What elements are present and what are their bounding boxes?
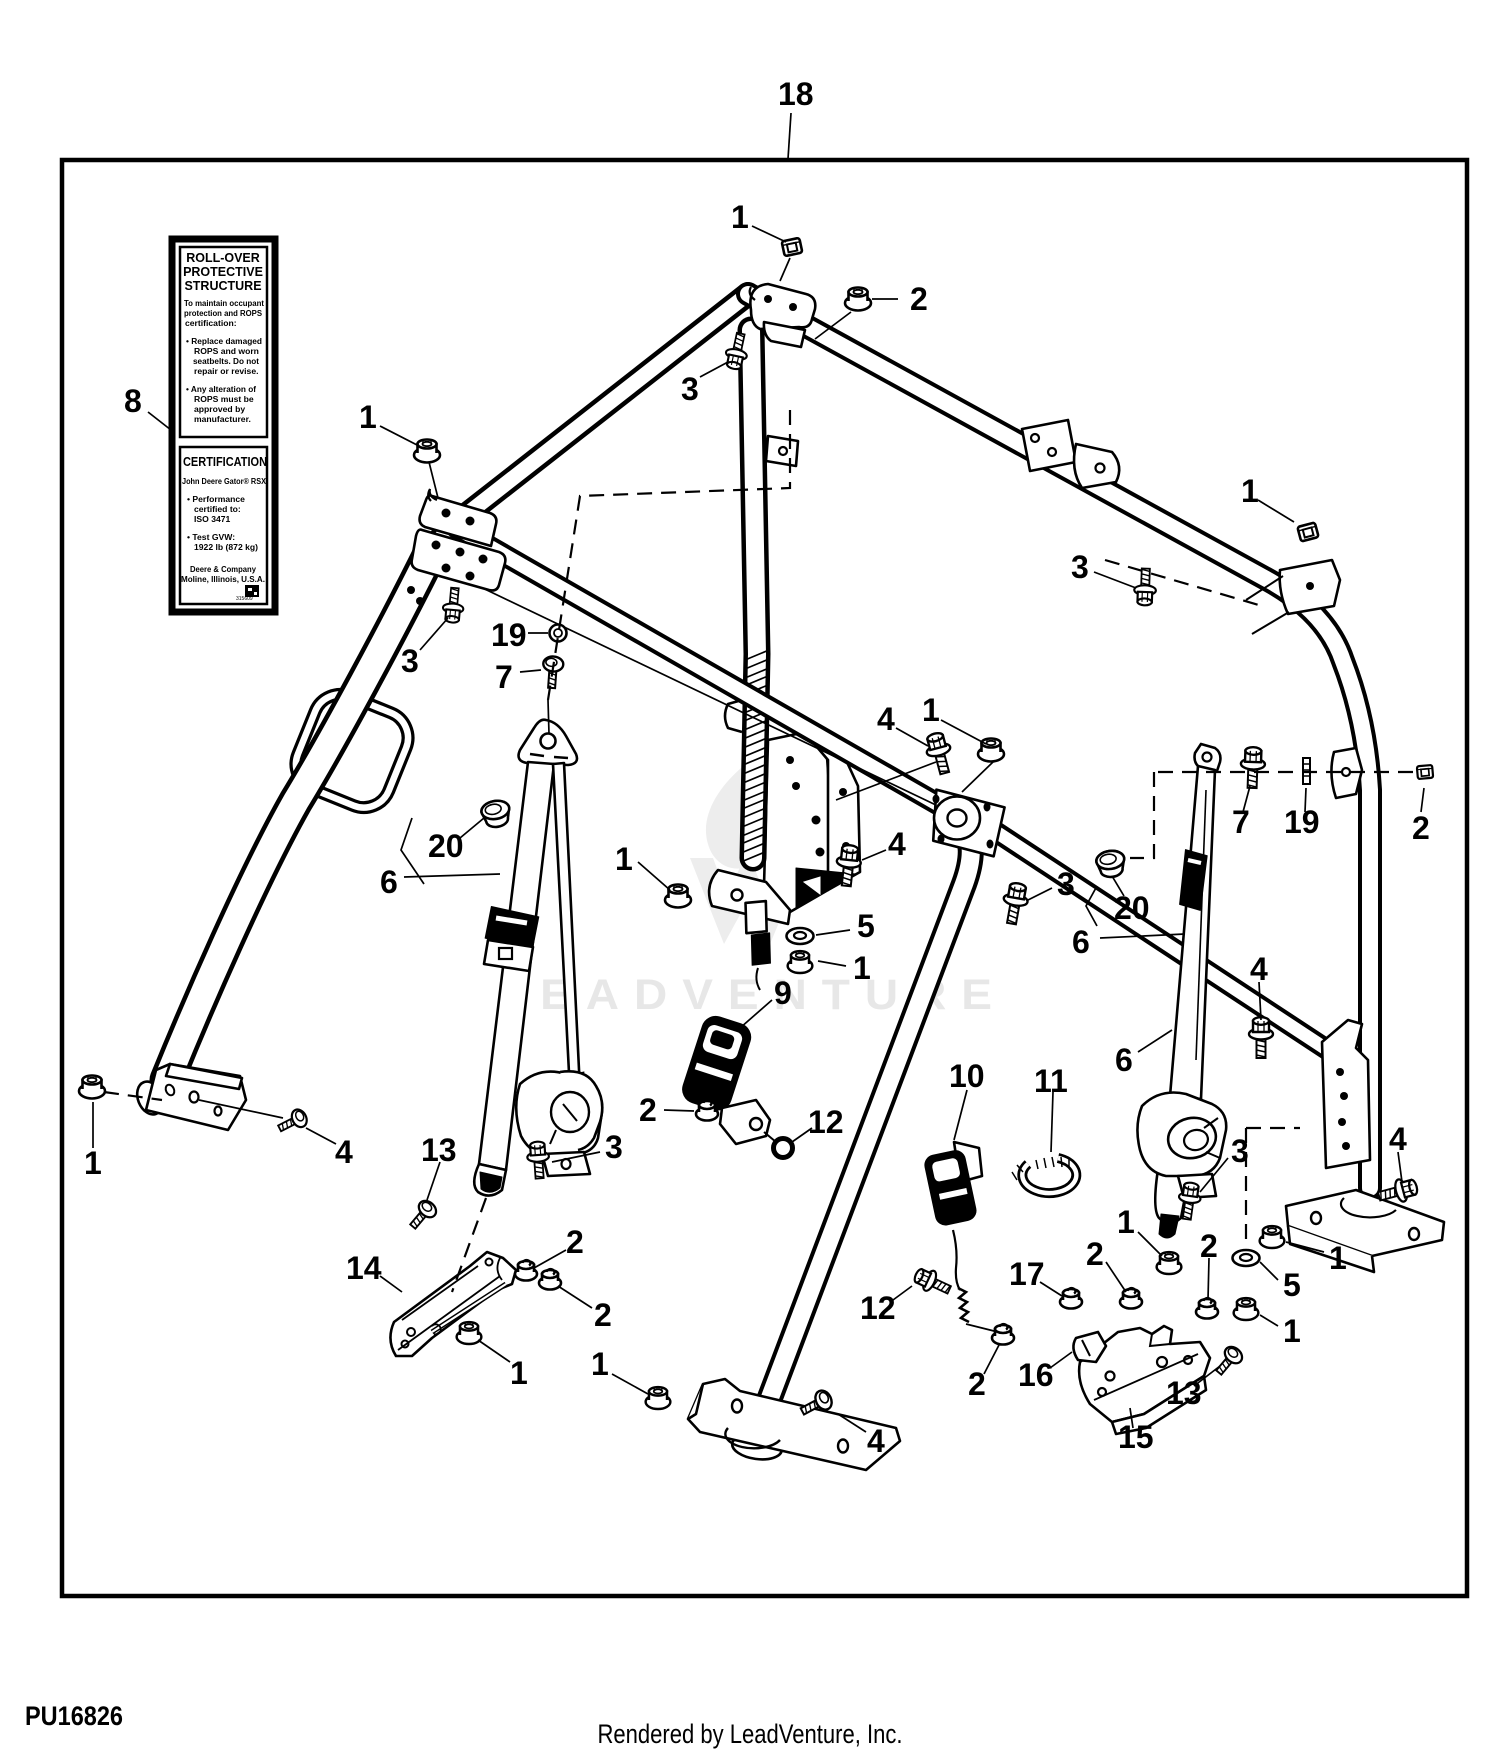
svg-text:5: 5 <box>857 908 875 944</box>
svg-text:4: 4 <box>888 826 906 862</box>
svg-text:To maintain occupant: To maintain occupant <box>184 298 264 308</box>
svg-text:9: 9 <box>774 975 792 1011</box>
svg-text:3: 3 <box>1231 1133 1249 1169</box>
svg-text:12: 12 <box>808 1104 844 1140</box>
svg-text:1: 1 <box>1117 1204 1135 1240</box>
svg-text:1: 1 <box>922 692 940 728</box>
svg-text:1: 1 <box>615 841 633 877</box>
svg-text:11: 11 <box>1034 1063 1068 1099</box>
svg-text:2: 2 <box>1200 1228 1218 1264</box>
svg-text:3: 3 <box>401 643 419 679</box>
svg-text:1: 1 <box>84 1145 102 1181</box>
svg-text:2: 2 <box>639 1092 657 1128</box>
svg-text:8: 8 <box>124 383 142 419</box>
svg-text:12: 12 <box>860 1290 896 1326</box>
svg-text:approved by: approved by <box>194 404 245 414</box>
svg-text:Rendered by LeadVenture, Inc.: Rendered by LeadVenture, Inc. <box>598 1719 903 1749</box>
svg-text:2: 2 <box>1412 810 1430 846</box>
svg-text:Deere & Company: Deere & Company <box>190 564 256 574</box>
svg-text:certification:: certification: <box>185 318 237 328</box>
svg-text:5: 5 <box>1283 1267 1301 1303</box>
svg-text:6: 6 <box>1115 1042 1133 1078</box>
svg-text:STRUCTURE: STRUCTURE <box>184 279 261 293</box>
svg-text:19: 19 <box>491 617 527 653</box>
svg-text:repair or revise.: repair or revise. <box>194 366 259 376</box>
svg-text:• Replace damaged: • Replace damaged <box>186 336 262 346</box>
svg-text:19: 19 <box>1284 804 1320 840</box>
svg-text:13: 13 <box>421 1132 457 1168</box>
svg-text:1: 1 <box>591 1346 609 1382</box>
svg-text:4: 4 <box>1250 951 1268 987</box>
svg-text:1: 1 <box>510 1355 528 1391</box>
svg-text:1: 1 <box>731 199 749 235</box>
svg-text:certified to:: certified to: <box>194 504 241 514</box>
svg-text:4: 4 <box>335 1134 353 1170</box>
svg-text:20: 20 <box>428 828 464 864</box>
svg-text:1: 1 <box>853 950 871 986</box>
svg-text:1: 1 <box>1329 1240 1347 1276</box>
svg-text:18: 18 <box>778 76 814 112</box>
svg-text:3: 3 <box>681 371 699 407</box>
svg-text:1: 1 <box>1241 473 1259 509</box>
svg-text:• Test GVW:: • Test GVW: <box>187 532 235 542</box>
svg-text:17: 17 <box>1009 1256 1045 1292</box>
svg-text:ISO 3471: ISO 3471 <box>194 514 231 524</box>
svg-text:2: 2 <box>566 1224 584 1260</box>
svg-text:13: 13 <box>1166 1375 1202 1411</box>
svg-text:manufacturer.: manufacturer. <box>194 414 251 424</box>
svg-text:protection and ROPS: protection and ROPS <box>184 308 262 318</box>
svg-text:PU16826: PU16826 <box>25 1701 123 1731</box>
svg-text:16: 16 <box>1018 1357 1054 1393</box>
svg-text:• Any alteration of: • Any alteration of <box>186 384 256 394</box>
svg-text:4: 4 <box>1389 1121 1407 1157</box>
svg-text:15: 15 <box>1118 1419 1154 1455</box>
svg-text:20: 20 <box>1114 890 1150 926</box>
svg-text:• Performance: • Performance <box>187 494 245 504</box>
svg-text:6: 6 <box>1072 924 1090 960</box>
svg-text:ROLL-OVER: ROLL-OVER <box>186 251 260 265</box>
svg-text:ROPS must be: ROPS must be <box>194 394 254 404</box>
svg-text:1: 1 <box>1283 1313 1301 1349</box>
svg-text:14: 14 <box>346 1250 382 1286</box>
svg-text:315609: 315609 <box>236 596 253 602</box>
svg-text:John Deere Gator® RSX: John Deere Gator® RSX <box>182 476 266 486</box>
svg-text:ROPS and worn: ROPS and worn <box>194 346 259 356</box>
svg-text:CERTIFICATION: CERTIFICATION <box>183 455 267 469</box>
svg-text:1922 lb (872 kg): 1922 lb (872 kg) <box>194 542 258 552</box>
svg-text:4: 4 <box>877 701 895 737</box>
svg-text:7: 7 <box>495 659 513 695</box>
svg-text:4: 4 <box>867 1423 885 1459</box>
svg-text:Moline, Illinois, U.S.A.: Moline, Illinois, U.S.A. <box>181 574 265 584</box>
svg-text:7: 7 <box>1232 804 1250 840</box>
svg-text:PROTECTIVE: PROTECTIVE <box>183 265 263 279</box>
svg-text:3: 3 <box>1057 866 1075 902</box>
svg-text:2: 2 <box>594 1297 612 1333</box>
svg-text:3: 3 <box>605 1129 623 1165</box>
svg-text:3: 3 <box>1071 549 1089 585</box>
svg-text:2: 2 <box>910 281 928 317</box>
svg-text:seatbelts. Do not: seatbelts. Do not <box>193 356 259 366</box>
svg-text:6: 6 <box>380 864 398 900</box>
svg-text:2: 2 <box>968 1366 986 1402</box>
svg-text:10: 10 <box>949 1058 985 1094</box>
svg-text:1: 1 <box>359 399 377 435</box>
svg-text:2: 2 <box>1086 1236 1104 1272</box>
